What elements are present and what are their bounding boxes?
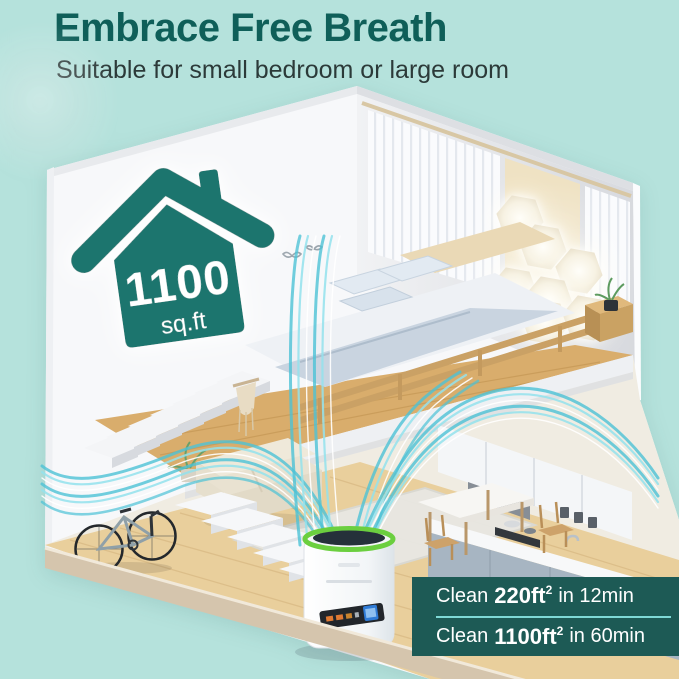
air-outlet: [313, 531, 385, 546]
clean-time-row-1: Clean 220ft2 in 12min: [436, 577, 679, 616]
pot: [504, 521, 520, 528]
clean-suffix: in 60min: [569, 625, 645, 648]
clean-prefix: Clean: [436, 585, 488, 608]
squared-superscript: 2: [546, 584, 553, 596]
brand-label: [326, 580, 372, 583]
clean-area: 1100ft2: [494, 626, 563, 648]
clean-area: 220ft2: [494, 585, 552, 607]
squared-superscript: 2: [557, 625, 564, 637]
clean-prefix: Clean: [436, 625, 488, 648]
handle-slot: [338, 563, 360, 567]
cleaning-performance-panel: Clean 220ft2 in 12min Clean 1100ft2 in 6…: [412, 577, 679, 656]
pot: [524, 528, 536, 534]
product-marketing-image: { "colors": { "background": "#b5e2dc", "…: [0, 0, 679, 679]
clean-time-row-2: Clean 1100ft2 in 60min: [436, 618, 679, 657]
clean-suffix: in 12min: [558, 585, 634, 608]
